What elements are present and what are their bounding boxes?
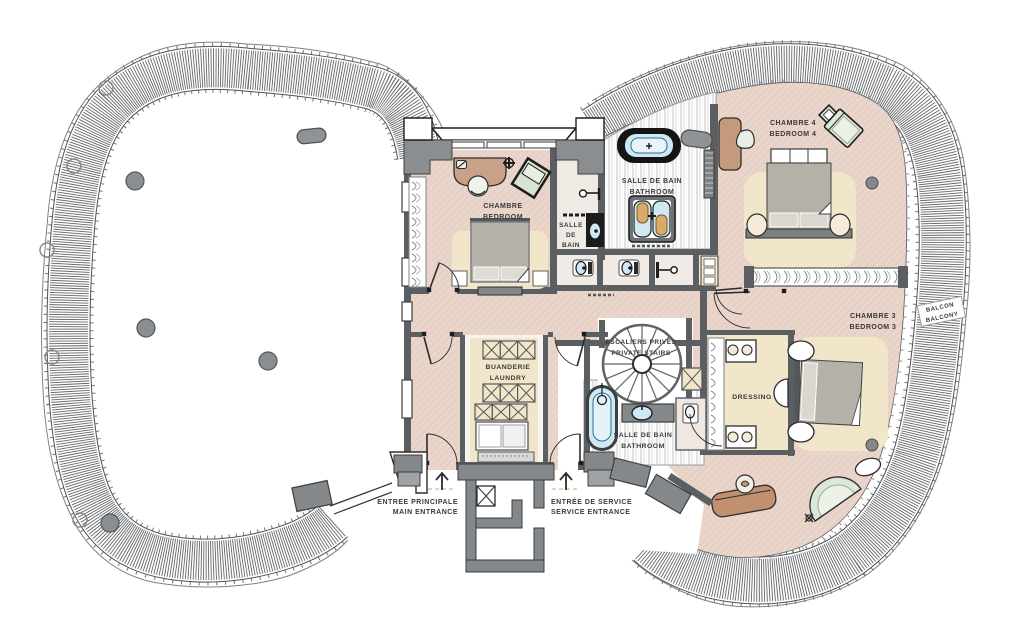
svg-text:ENTREE PRINCIPALE: ENTREE PRINCIPALE [377,499,458,506]
svg-text:BEDROOM 3: BEDROOM 3 [850,324,897,331]
svg-text:CHAMBRE 3: CHAMBRE 3 [850,313,896,320]
svg-text:SALLE DE BAIN: SALLE DE BAIN [614,432,673,439]
svg-text:BEDROOM 4: BEDROOM 4 [770,131,817,138]
svg-text:BAIN: BAIN [562,242,580,249]
svg-text:DRESSING: DRESSING [732,394,772,401]
svg-text:ENTRÉE DE SERVICE: ENTRÉE DE SERVICE [551,497,632,506]
svg-text:SERVICE ENTRANCE: SERVICE ENTRANCE [551,509,630,516]
svg-text:PRIVATE STAIRS: PRIVATE STAIRS [611,350,671,357]
svg-text:LAUNDRY: LAUNDRY [490,375,526,382]
svg-text:BATHROOM: BATHROOM [630,189,675,196]
svg-text:CHAMBRE: CHAMBRE [483,203,522,210]
svg-text:BUANDERIE: BUANDERIE [486,364,531,371]
svg-text:SALLE: SALLE [559,222,583,229]
svg-text:ESCALIERS PRIVÉS: ESCALIERS PRIVÉS [606,337,677,346]
svg-text:BEDROOM: BEDROOM [483,214,523,221]
svg-text:MAIN ENTRANCE: MAIN ENTRANCE [393,509,458,516]
svg-text:DE: DE [566,232,576,239]
svg-text:BATHROOM: BATHROOM [621,443,665,450]
svg-text:CHAMBRE 4: CHAMBRE 4 [770,120,816,127]
svg-text:SALLE DE BAIN: SALLE DE BAIN [622,178,682,185]
